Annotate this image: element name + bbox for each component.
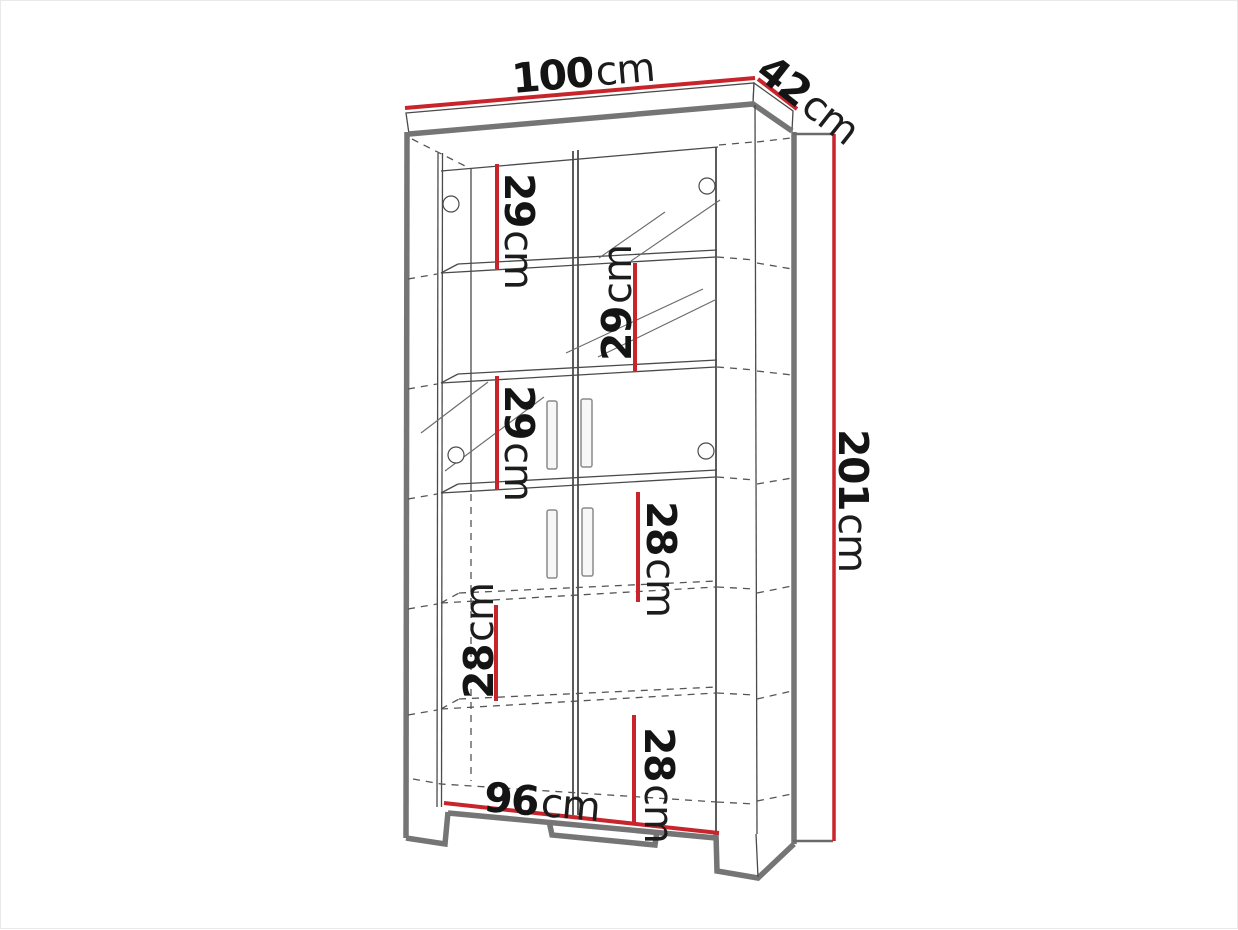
dimension-label-section-6: 28cm [635,727,683,843]
cabinet-floor-line [413,779,792,804]
dimension-label-section-1: 29cm [495,173,543,289]
dimension-line-height [793,134,834,841]
shelf-3-line [408,470,792,499]
diagram-canvas: 100cm 42cm 201cm 96cm 29cm 29cm 29cm 28c… [1,1,1238,930]
door-handles [547,399,593,578]
glass-reflection-lines [421,200,720,471]
cabinet-frame [406,105,794,844]
interior-top-lines [412,138,791,171]
cabinet-dimension-diagram: 100cm 42cm 201cm 96cm 29cm 29cm 29cm 28c… [0,0,1238,929]
dimension-label-section-5: 28cm [455,583,503,699]
dimension-label-section-2: 29cm [593,245,641,361]
dimension-label-bottom-width: 96cm [482,773,602,831]
dimension-label-section-4: 28cm [637,501,685,617]
dimension-label-height: 201cm [829,429,877,572]
hinge-marks [443,178,715,463]
shelf-2-line [408,360,792,389]
dimension-label-section-3: 29cm [495,385,543,501]
